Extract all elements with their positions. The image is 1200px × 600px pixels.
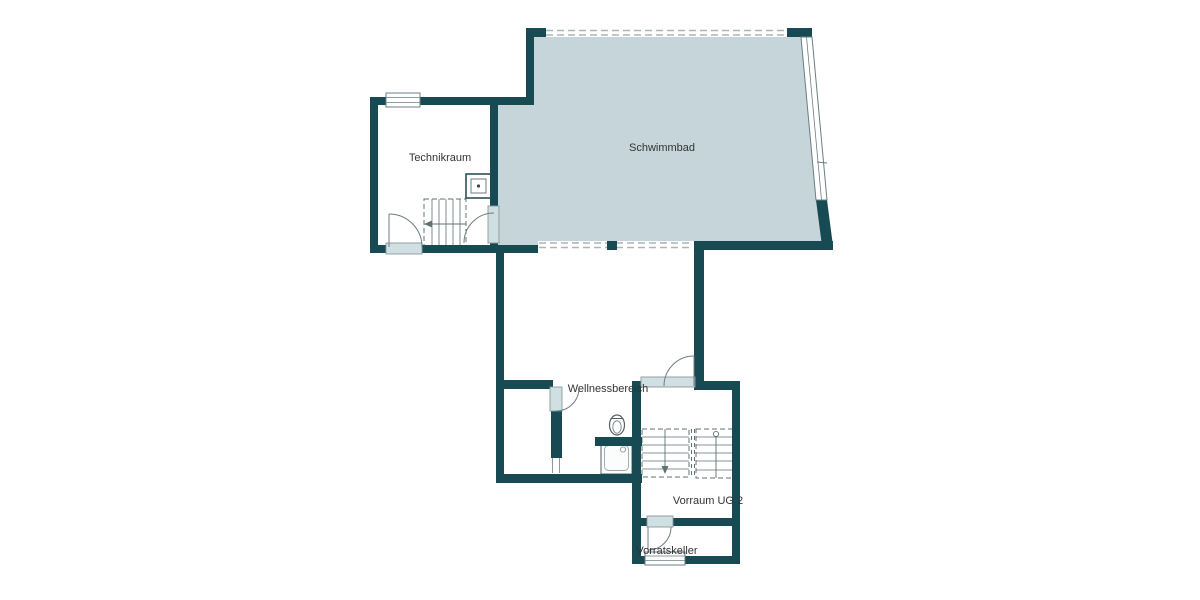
stairs-vorraum-flight-b <box>696 429 737 478</box>
stairs-technikraum <box>424 199 466 246</box>
wall-pool-bottom-post <box>607 241 617 250</box>
stair-direction-arrow-icon <box>662 466 669 474</box>
wall-wellness-partition-top <box>496 380 553 389</box>
door-panel-vorratskeller <box>647 516 673 527</box>
pool-top-opening <box>545 28 788 37</box>
window-technikraum-top <box>386 93 420 107</box>
wall-wellness-left <box>496 245 504 483</box>
wall-wellness-right <box>694 241 704 387</box>
door-panel-wellness-inner <box>550 387 562 411</box>
stairs-vorraum-flight-a <box>642 429 689 477</box>
wall-pool-top-left-stub <box>526 28 546 37</box>
room-label-schwimmbad: Schwimmbad <box>629 142 695 154</box>
wall-vorraum-right <box>732 381 740 564</box>
stair-treads <box>696 437 737 470</box>
floor-drain-icon <box>620 447 625 452</box>
stair-treads <box>432 199 460 246</box>
room-label-vorraum-ug-2: Vorraum UG 2 <box>673 495 743 507</box>
stair-direction-start-dot <box>713 431 718 436</box>
shower-tray-icon <box>601 442 632 474</box>
stair-direction-arrow-icon <box>424 221 432 228</box>
wall-pool-top-right-stub <box>787 28 812 37</box>
door-swing-technikraum-left <box>389 214 422 247</box>
room-label-technikraum: Technikraum <box>409 152 471 164</box>
floor-plan-canvas: Technikraum Schwimmbad Wellnessbereich V… <box>0 0 1200 600</box>
floor-plan-svg: Technikraum Schwimmbad Wellnessbereich V… <box>0 0 1200 600</box>
equipment-unit-technikraum <box>466 174 491 198</box>
wall-technikraum-left <box>370 97 378 253</box>
door-panel-technikraum-left <box>386 243 422 254</box>
room-label-wellnessbereich: Wellnessbereich <box>568 383 649 395</box>
wall-wellness-partition-mid <box>551 409 562 458</box>
wall-keller-divider-right <box>671 518 740 526</box>
stair-treads <box>642 437 689 469</box>
wall-wellness-bottom <box>496 474 642 483</box>
room-label-vorratskeller: Vorratskeller <box>636 545 697 557</box>
toilet-icon <box>610 415 625 435</box>
wall-opening-ticks <box>553 458 560 473</box>
door-panel-wellness-vorraum <box>641 377 695 387</box>
wall-pool-left <box>526 28 534 105</box>
door-panel-technikraum-right <box>488 206 499 243</box>
stairs-landing-lines <box>692 429 695 478</box>
equipment-dot <box>477 184 480 187</box>
wall-pool-bottom-right <box>694 241 833 250</box>
wall-keller-divider-left <box>632 518 649 526</box>
schwimmbad-room-area <box>498 30 830 246</box>
wall-vorraum-left <box>632 381 641 564</box>
